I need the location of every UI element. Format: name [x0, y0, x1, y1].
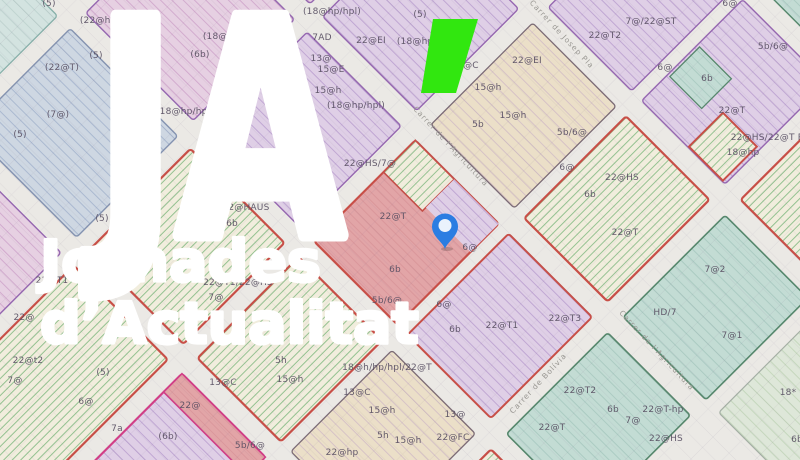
title-line-2: d’Actualitat: [40, 291, 419, 357]
map-pin-center: [439, 219, 452, 232]
zoning-map: Carrer de l'AgriculturaCarrer de l'Agric…: [0, 0, 800, 460]
banner-stage: Carrer de l'AgriculturaCarrer de l'Agric…: [0, 0, 800, 460]
map-pin-shadow: [441, 247, 453, 251]
title-line-1: Jornades: [36, 229, 321, 295]
